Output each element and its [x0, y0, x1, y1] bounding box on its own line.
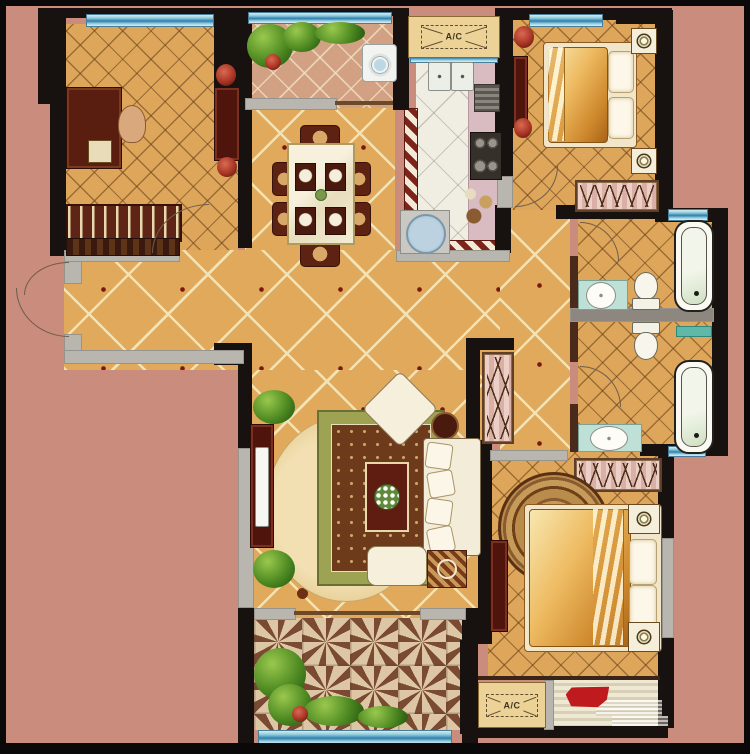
potted-plant — [514, 26, 534, 48]
table-lamp-icon — [637, 512, 652, 527]
ac-unit-marker: A/C — [421, 25, 487, 49]
ac-label-north: A/C — [443, 32, 466, 43]
kitchen-sink — [428, 62, 451, 91]
ac-label-south: A/C — [501, 700, 524, 711]
balcony-plants — [304, 696, 364, 726]
bathroom-door-swing — [580, 222, 619, 261]
balcony-sill — [245, 98, 337, 110]
place-setting — [295, 163, 316, 191]
wardrobe-hangers — [579, 463, 657, 487]
ac-platform-south: A/C — [478, 682, 546, 728]
north-bedroom — [513, 20, 655, 210]
sofa-pillow — [426, 469, 456, 499]
south-bedroom-east-sill — [662, 538, 674, 638]
towel-rail — [676, 326, 712, 337]
gas-stove — [470, 132, 502, 180]
north-bathroom — [578, 218, 712, 310]
bed-blanket-fold — [593, 509, 624, 645]
toilet-tank — [632, 298, 660, 310]
place-setting — [325, 207, 346, 235]
nightstand — [631, 148, 657, 174]
table-centerpiece — [315, 189, 327, 201]
television — [255, 447, 269, 527]
chaise-seat — [367, 546, 427, 586]
bedroom-door-swing — [515, 166, 558, 207]
potted-plant — [216, 64, 236, 86]
wall — [466, 338, 480, 450]
counter-jars — [462, 186, 496, 226]
side-cube — [88, 140, 112, 163]
ottoman-ring — [437, 559, 457, 579]
wall — [50, 8, 66, 256]
tv-cabinet — [490, 540, 508, 632]
south-balcony-window — [258, 730, 452, 745]
table-lamp-icon — [637, 630, 652, 645]
sofa-pillow — [424, 441, 453, 470]
bed-pillow — [629, 539, 657, 585]
watermark-smudge — [612, 716, 668, 726]
north-balcony — [245, 20, 395, 108]
bed-blanket-fold — [548, 47, 565, 141]
hall-south-wall — [64, 350, 244, 364]
study — [64, 24, 238, 256]
table-flowers — [374, 484, 400, 510]
balcony-flowers — [292, 706, 308, 722]
bookcase — [214, 87, 240, 161]
washing-machine — [362, 44, 397, 82]
wall — [712, 208, 728, 456]
wash-basin — [586, 282, 616, 309]
balcony-plants — [283, 22, 321, 52]
bed-pillow — [608, 51, 634, 93]
watermark-smudge — [596, 700, 662, 716]
place-setting — [295, 207, 316, 235]
south-bedroom-north-wall — [490, 450, 568, 461]
bathtub — [674, 220, 714, 312]
north-balcony-window — [248, 12, 392, 24]
hall-wardrobe — [482, 352, 514, 444]
washer-drum-icon — [368, 54, 391, 77]
kitchen — [400, 60, 500, 252]
balcony-plants — [315, 22, 365, 44]
ac-unit-marker: A/C — [486, 694, 538, 717]
toilet — [634, 332, 658, 360]
range-hood — [474, 84, 500, 112]
balcony-threshold — [335, 101, 393, 105]
ac-platform-north: A/C — [408, 16, 500, 58]
entry-door-swing — [16, 288, 69, 337]
bedroom-west-sill — [497, 176, 513, 208]
living-balcony-threshold — [294, 611, 420, 615]
wardrobe — [575, 180, 659, 212]
potted-plant — [217, 157, 237, 177]
sofa-pillow — [424, 497, 453, 526]
desk-chair — [118, 105, 146, 143]
double-bed — [543, 42, 637, 148]
dining-area — [245, 108, 395, 258]
wall — [478, 676, 660, 680]
table-lamp-icon — [637, 34, 652, 49]
potted-plant — [253, 550, 295, 588]
bathtub-drain — [694, 291, 699, 296]
south-bathroom — [578, 320, 712, 452]
wardrobe-hangers — [487, 357, 509, 439]
living-room — [245, 370, 488, 618]
wall — [570, 404, 578, 452]
kitchen-sink — [451, 62, 474, 91]
place-setting — [325, 163, 346, 191]
toilet — [634, 272, 658, 300]
sofa — [423, 438, 481, 556]
nightstand — [631, 28, 657, 54]
bathtub — [674, 360, 714, 454]
wall — [238, 604, 254, 754]
kitchen-table-top — [406, 214, 446, 254]
potted-plant — [253, 390, 295, 424]
nightstand — [628, 622, 660, 652]
balcony-flowers — [265, 54, 281, 70]
table-lamp-icon — [637, 154, 652, 169]
floor-plan: A/C A/C — [0, 0, 750, 754]
ottoman — [427, 550, 467, 588]
side-table — [431, 412, 459, 440]
bed-pillow — [608, 97, 634, 139]
wardrobe-hangers — [580, 185, 654, 207]
bathtub-drain — [694, 433, 699, 438]
balcony-plants — [358, 706, 408, 728]
wall — [495, 205, 511, 253]
potted-plant — [514, 118, 532, 138]
wall — [460, 640, 478, 734]
south-bedroom — [488, 452, 662, 678]
north-bedroom-window — [529, 14, 603, 27]
living-balcony-sill — [254, 608, 296, 620]
living-balcony-sill — [420, 608, 466, 620]
wash-basin — [590, 426, 628, 451]
bathroom-door-swing — [580, 366, 621, 407]
study-window — [86, 14, 214, 27]
kitchen-table — [400, 210, 450, 254]
coffee-table — [365, 462, 409, 532]
nightstand — [628, 504, 660, 534]
south-balcony — [254, 618, 462, 730]
dining-table — [287, 143, 355, 245]
